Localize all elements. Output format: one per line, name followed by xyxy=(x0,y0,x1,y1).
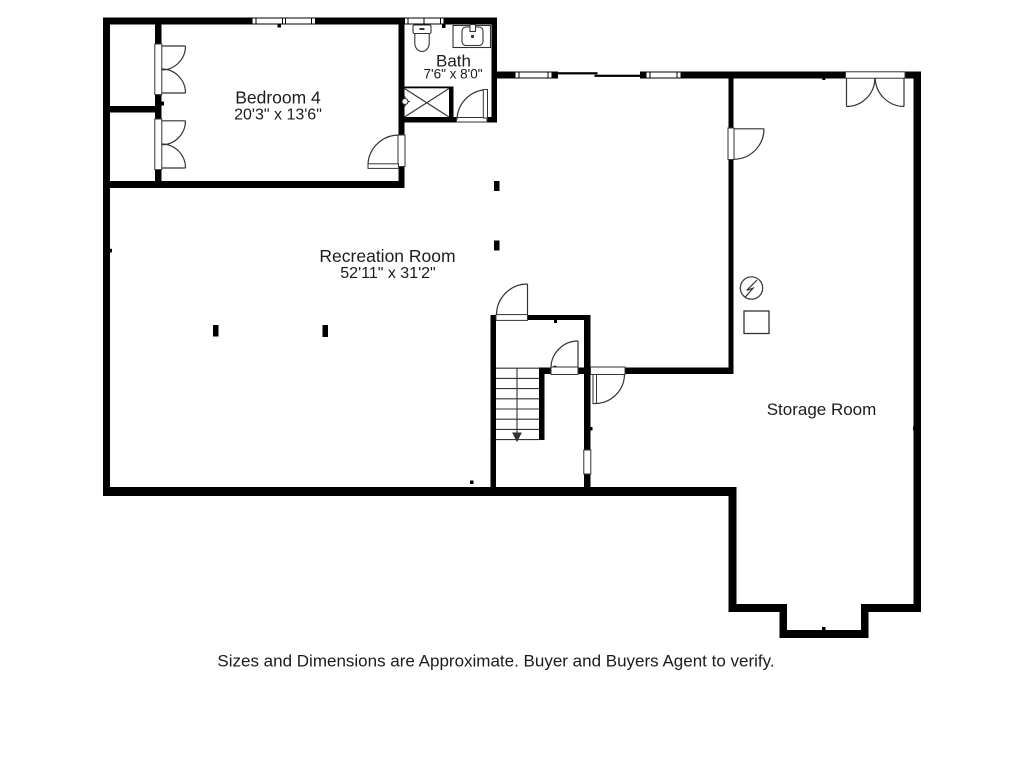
svg-text:Bedroom 4: Bedroom 4 xyxy=(235,88,321,108)
svg-text:20'3" x 13'6": 20'3" x 13'6" xyxy=(234,107,322,124)
svg-text:Recreation Room: Recreation Room xyxy=(319,246,455,266)
svg-text:Sizes and Dimensions are Appro: Sizes and Dimensions are Approximate. Bu… xyxy=(217,652,774,671)
svg-text:52'11" x 31'2": 52'11" x 31'2" xyxy=(340,265,435,282)
svg-text:7'6" x 8'0": 7'6" x 8'0" xyxy=(423,67,482,82)
svg-text:Storage Room: Storage Room xyxy=(767,400,877,419)
